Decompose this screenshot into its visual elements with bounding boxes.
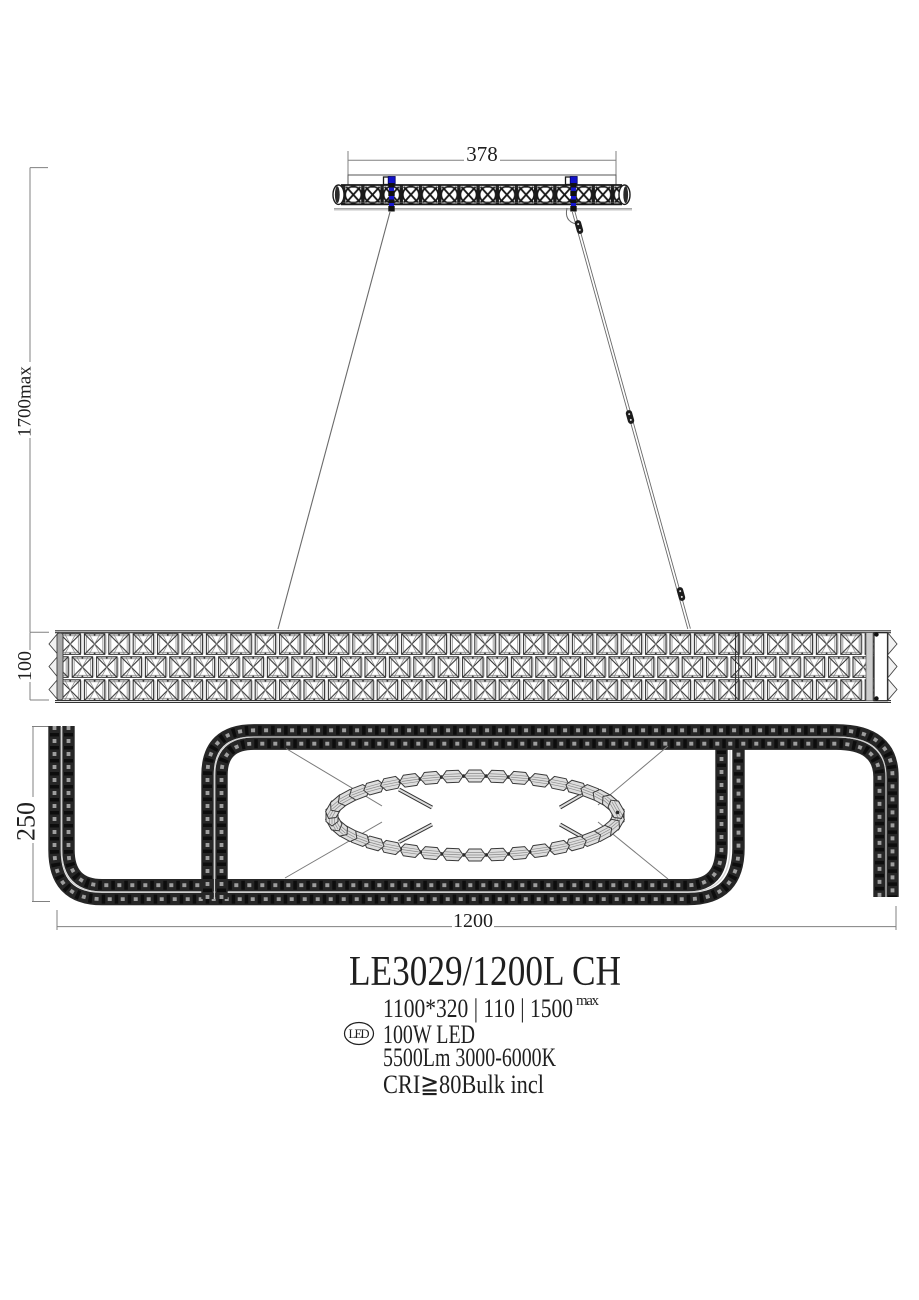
svg-text:100: 100 — [14, 651, 36, 681]
svg-text:CRI≧80Bulk incl: CRI≧80Bulk incl — [383, 1070, 544, 1099]
svg-text:1100*320 | 110 | 1500: 1100*320 | 110 | 1500 — [383, 994, 573, 1023]
svg-text:LE3029/1200L CH: LE3029/1200L CH — [349, 949, 621, 995]
svg-text:LED: LED — [349, 1027, 370, 1041]
svg-text:max: max — [576, 993, 600, 1009]
svg-text:1700max: 1700max — [15, 366, 36, 437]
svg-text:250: 250 — [12, 802, 41, 841]
svg-text:378: 378 — [466, 142, 498, 166]
svg-text:1200: 1200 — [453, 910, 493, 932]
svg-text:5500Lm 3000-6000K: 5500Lm 3000-6000K — [383, 1043, 556, 1072]
